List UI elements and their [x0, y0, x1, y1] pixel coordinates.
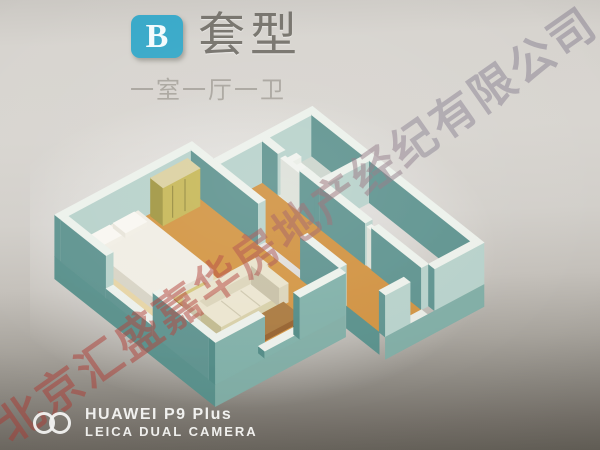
leica-dual-lens-icon	[33, 412, 71, 434]
floorplan-3d-rendering	[0, 0, 600, 450]
camera-model-text: LEICA DUAL CAMERA	[85, 424, 258, 440]
type-b-badge: B	[131, 15, 183, 58]
camera-watermark: HUAWEI P9 Plus LEICA DUAL CAMERA	[33, 405, 258, 440]
camera-brand-text: HUAWEI P9 Plus	[85, 405, 258, 424]
layout-subtitle: 一室一厅一卫	[130, 70, 286, 105]
page-title: 套型	[198, 9, 302, 61]
photo-of-floorplan-page: B 套型 一室一厅一卫 北京汇盛嘉华房地产经纪有限公司 HUAWEI P9 Pl…	[0, 0, 600, 450]
